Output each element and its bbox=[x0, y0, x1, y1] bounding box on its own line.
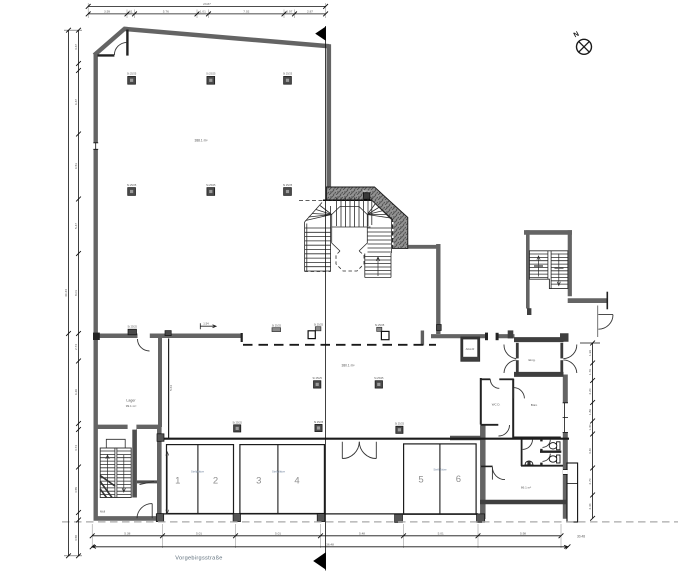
svg-text:86.1 m²: 86.1 m² bbox=[521, 486, 531, 490]
svg-text:Müll: Müll bbox=[100, 510, 106, 514]
svg-text:2.74: 2.74 bbox=[74, 344, 78, 350]
svg-text:5.64: 5.64 bbox=[169, 385, 173, 391]
svg-text:5.47: 5.47 bbox=[74, 223, 78, 229]
svg-text:St 25/25: St 25/25 bbox=[314, 323, 324, 326]
svg-text:5.01: 5.01 bbox=[438, 531, 444, 535]
svg-text:St 25/25: St 25/25 bbox=[233, 421, 243, 424]
svg-text:St 25/25: St 25/25 bbox=[206, 184, 216, 187]
svg-text:6.26: 6.26 bbox=[74, 389, 78, 395]
svg-text:Stellplätze: Stellplätze bbox=[433, 468, 447, 472]
svg-text:Stellplätze: Stellplätze bbox=[191, 470, 205, 474]
svg-text:Stellplätze: Stellplätze bbox=[272, 470, 286, 474]
svg-text:7.02: 7.02 bbox=[243, 9, 249, 13]
svg-text:23.87: 23.87 bbox=[203, 2, 211, 6]
svg-text:4.55: 4.55 bbox=[74, 487, 78, 493]
svg-text:4: 4 bbox=[294, 476, 299, 487]
svg-text:St 25/25: St 25/25 bbox=[127, 184, 137, 187]
svg-text:5.98: 5.98 bbox=[520, 531, 526, 535]
svg-text:St 25/25: St 25/25 bbox=[128, 326, 138, 329]
svg-text:5.01: 5.01 bbox=[196, 531, 202, 535]
svg-text:Vorgebirgsstraße: Vorgebirgsstraße bbox=[175, 556, 222, 562]
svg-text:St 25/25: St 25/25 bbox=[283, 73, 293, 76]
svg-text:0.97: 0.97 bbox=[286, 9, 292, 13]
svg-text:6.37: 6.37 bbox=[74, 99, 78, 105]
svg-text:1.30: 1.30 bbox=[588, 424, 592, 430]
svg-text:3.58: 3.58 bbox=[74, 535, 78, 541]
svg-text:5.38: 5.38 bbox=[124, 531, 130, 535]
svg-text:3.40: 3.40 bbox=[588, 448, 592, 454]
svg-text:Lager: Lager bbox=[126, 399, 136, 403]
svg-text:2.87: 2.87 bbox=[307, 9, 313, 13]
svg-text:3.59: 3.59 bbox=[104, 9, 110, 13]
svg-text:380.1 m²: 380.1 m² bbox=[341, 364, 355, 368]
svg-text:1: 1 bbox=[175, 476, 180, 487]
svg-text:1.54: 1.54 bbox=[203, 322, 209, 326]
svg-text:6.51: 6.51 bbox=[74, 163, 78, 169]
svg-text:36.48: 36.48 bbox=[326, 542, 334, 546]
svg-text:1.86: 1.86 bbox=[588, 409, 592, 415]
svg-text:St 25/25: St 25/25 bbox=[395, 423, 405, 426]
svg-text:WC D.: WC D. bbox=[492, 403, 501, 407]
svg-text:388.1 m²: 388.1 m² bbox=[194, 139, 208, 143]
svg-text:Abst.R: Abst.R bbox=[466, 347, 475, 351]
svg-text:5: 5 bbox=[418, 475, 423, 486]
svg-text:2: 2 bbox=[213, 476, 218, 487]
svg-text:30.48: 30.48 bbox=[577, 535, 585, 539]
svg-text:Kamin: Kamin bbox=[363, 190, 371, 193]
svg-text:3.74: 3.74 bbox=[74, 445, 78, 451]
svg-text:St 25/25: St 25/25 bbox=[314, 421, 324, 424]
svg-text:3: 3 bbox=[256, 476, 261, 487]
svg-text:St 25/25: St 25/25 bbox=[206, 73, 216, 76]
svg-text:5.01: 5.01 bbox=[275, 531, 281, 535]
svg-text:St 25/25: St 25/25 bbox=[313, 377, 323, 380]
svg-text:St 25/25: St 25/25 bbox=[374, 377, 384, 380]
svg-text:1.99: 1.99 bbox=[588, 350, 592, 356]
svg-text:6: 6 bbox=[456, 474, 461, 485]
svg-text:Büro: Büro bbox=[531, 403, 538, 407]
svg-text:St 25/25: St 25/25 bbox=[272, 324, 282, 327]
svg-text:2.34: 2.34 bbox=[588, 503, 592, 509]
svg-text:51: 51 bbox=[129, 9, 133, 13]
svg-text:3.37: 3.37 bbox=[74, 44, 78, 50]
svg-text:1.76: 1.76 bbox=[588, 369, 592, 375]
svg-text:St 25/25: St 25/25 bbox=[375, 324, 385, 327]
svg-text:30.33: 30.33 bbox=[64, 289, 68, 297]
svg-text:St 25/25: St 25/25 bbox=[283, 184, 293, 187]
svg-text:2.70: 2.70 bbox=[588, 478, 592, 484]
svg-text:1.01: 1.01 bbox=[200, 9, 206, 13]
svg-text:St 25/25: St 25/25 bbox=[127, 73, 137, 76]
svg-text:8.01: 8.01 bbox=[74, 290, 78, 296]
svg-text:2.20: 2.20 bbox=[588, 388, 592, 394]
svg-text:N: N bbox=[573, 31, 581, 40]
svg-text:5.48: 5.48 bbox=[359, 531, 365, 535]
svg-text:99.1 m²: 99.1 m² bbox=[126, 404, 137, 408]
svg-text:5.76: 5.76 bbox=[163, 9, 169, 13]
svg-text:Eing.: Eing. bbox=[528, 358, 535, 362]
